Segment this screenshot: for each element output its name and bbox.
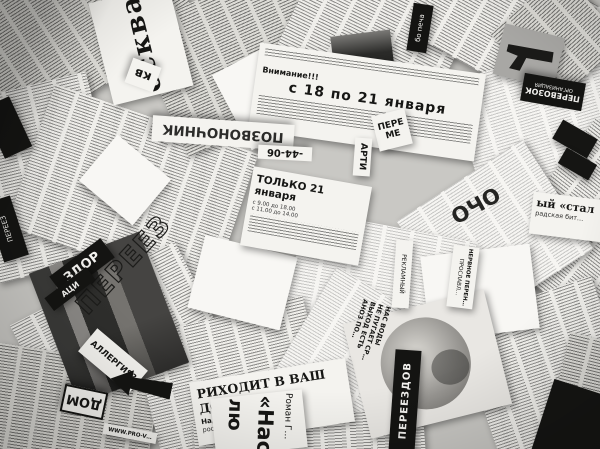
- dom-text: ДОМ: [65, 391, 103, 413]
- phone-text: -44-06: [267, 147, 304, 160]
- reklamny-text: РЕКЛАМНЫЙ: [398, 254, 408, 294]
- nas-vody-block: НАС ВОДЫ НЕ ПУГАЕТ СР… ВЫХОД ЕСТЬ АНОЗ П…: [344, 298, 392, 364]
- pecha-text: бо печа: [414, 13, 426, 42]
- pozvonochnik-text: ПОЗВОНОЧНИК: [162, 121, 284, 145]
- nervnoe-text: НЕРВНОЕ ПЕРЕН…: [460, 248, 473, 306]
- roman-na-scrap: лю «Нас Роман Г…: [210, 389, 308, 449]
- phone-scrap: -44-06: [258, 145, 313, 162]
- me-text: МЕ: [385, 128, 402, 141]
- nas-text: «Нас: [252, 395, 278, 449]
- arti-text: АРТИ: [357, 143, 369, 171]
- kv-text: кв: [132, 65, 153, 85]
- roman-text: Роман Г…: [282, 393, 294, 440]
- arti-strip: АРТИ: [353, 137, 373, 176]
- newspaper-collage: осква кв Внимание!!! с 18 по 21 января П…: [0, 0, 600, 449]
- lyu-text: лю: [223, 398, 246, 431]
- pereezdov-text: ПЕРЕЕЗДОВ: [397, 362, 413, 440]
- stal-headline-scrap: ый «стал радская бит…: [529, 192, 600, 243]
- left-pereez-text: ПЕРЕЕЗ: [0, 215, 15, 243]
